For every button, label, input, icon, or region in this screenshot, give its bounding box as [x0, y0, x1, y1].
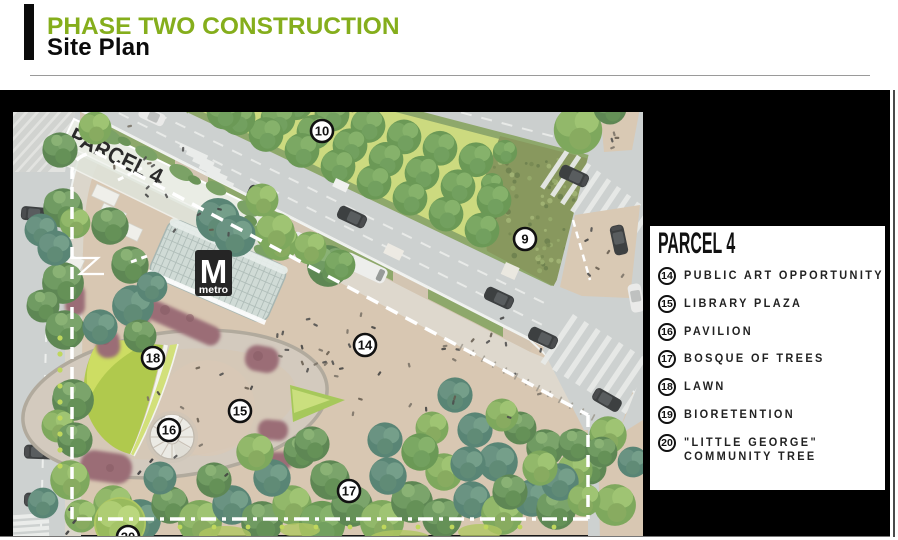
svg-text:9: 9 [521, 232, 528, 247]
svg-text:16: 16 [162, 423, 176, 438]
svg-text:17: 17 [342, 484, 356, 499]
svg-text:10: 10 [315, 124, 329, 139]
svg-text:15: 15 [233, 404, 247, 419]
svg-text:14: 14 [358, 338, 373, 353]
svg-text:18: 18 [146, 351, 160, 366]
